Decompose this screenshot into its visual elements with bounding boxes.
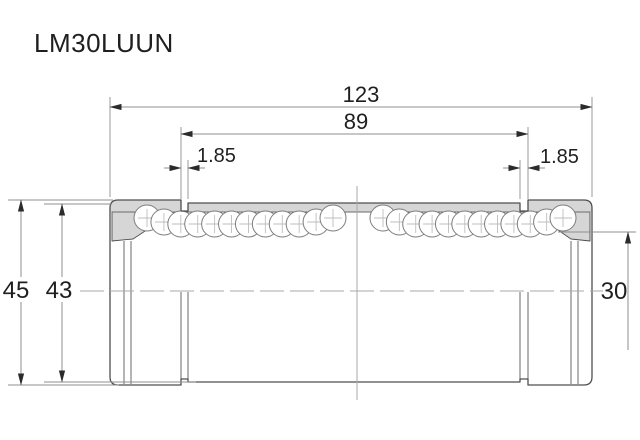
technical-drawing: LM30LUUN 123	[0, 0, 640, 440]
dimension-label-groove-width-right: 1.85	[540, 146, 579, 168]
dimension-label-groove-outer-diameter: 43	[46, 277, 73, 304]
dimension-label-groove-spacing: 89	[344, 109, 368, 134]
dimension-groove-width-left: 1.85	[164, 145, 236, 199]
dimension-label-overall-length: 123	[343, 82, 380, 107]
part-number-title: LM30LUUN	[34, 28, 174, 58]
bearing-body	[110, 200, 592, 385]
dimension-label-groove-width-left: 1.85	[197, 145, 236, 167]
dimension-label-bore-diameter: 30	[601, 278, 628, 305]
dimension-groove-width-right: 1.85	[503, 146, 579, 199]
dimension-label-outer-diameter: 45	[3, 277, 30, 304]
